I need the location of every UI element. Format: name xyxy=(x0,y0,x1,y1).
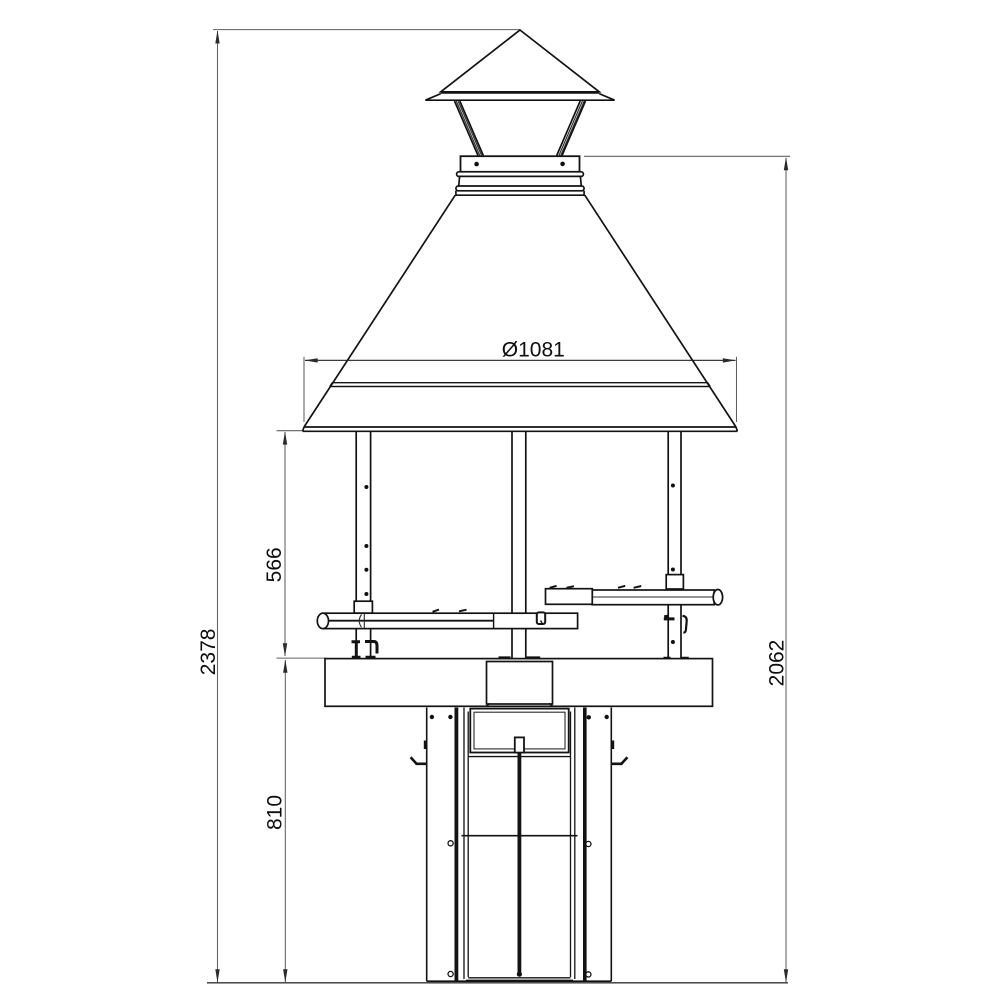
svg-text:Ø1081: Ø1081 xyxy=(502,339,565,362)
svg-text:2062: 2062 xyxy=(766,640,789,687)
svg-text:810: 810 xyxy=(264,795,287,830)
svg-text:2378: 2378 xyxy=(197,629,220,676)
svg-text:566: 566 xyxy=(263,547,286,582)
